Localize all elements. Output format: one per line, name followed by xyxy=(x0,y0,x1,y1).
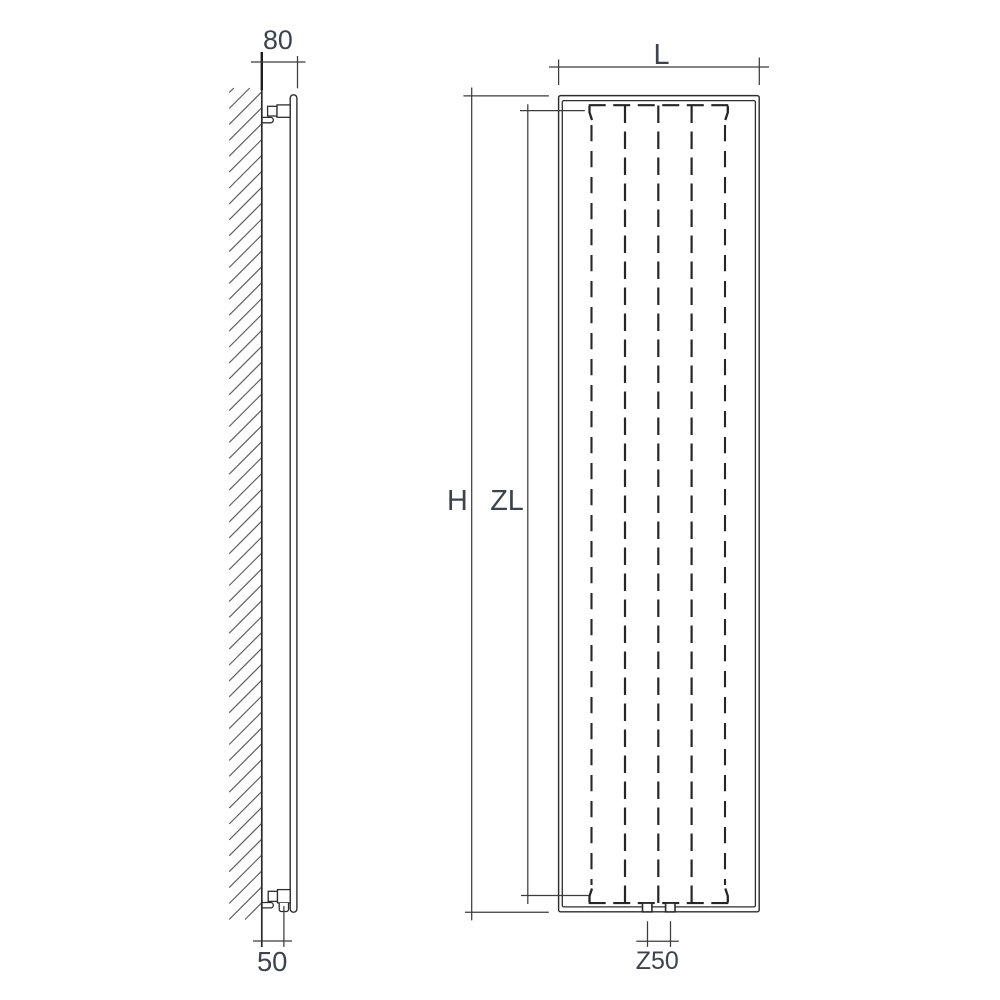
svg-text:50: 50 xyxy=(257,946,287,977)
svg-text:L: L xyxy=(653,39,669,71)
svg-text:H: H xyxy=(447,485,468,517)
svg-text:ZL: ZL xyxy=(490,485,524,517)
svg-text:Z50: Z50 xyxy=(636,947,679,975)
svg-text:80: 80 xyxy=(263,25,293,55)
